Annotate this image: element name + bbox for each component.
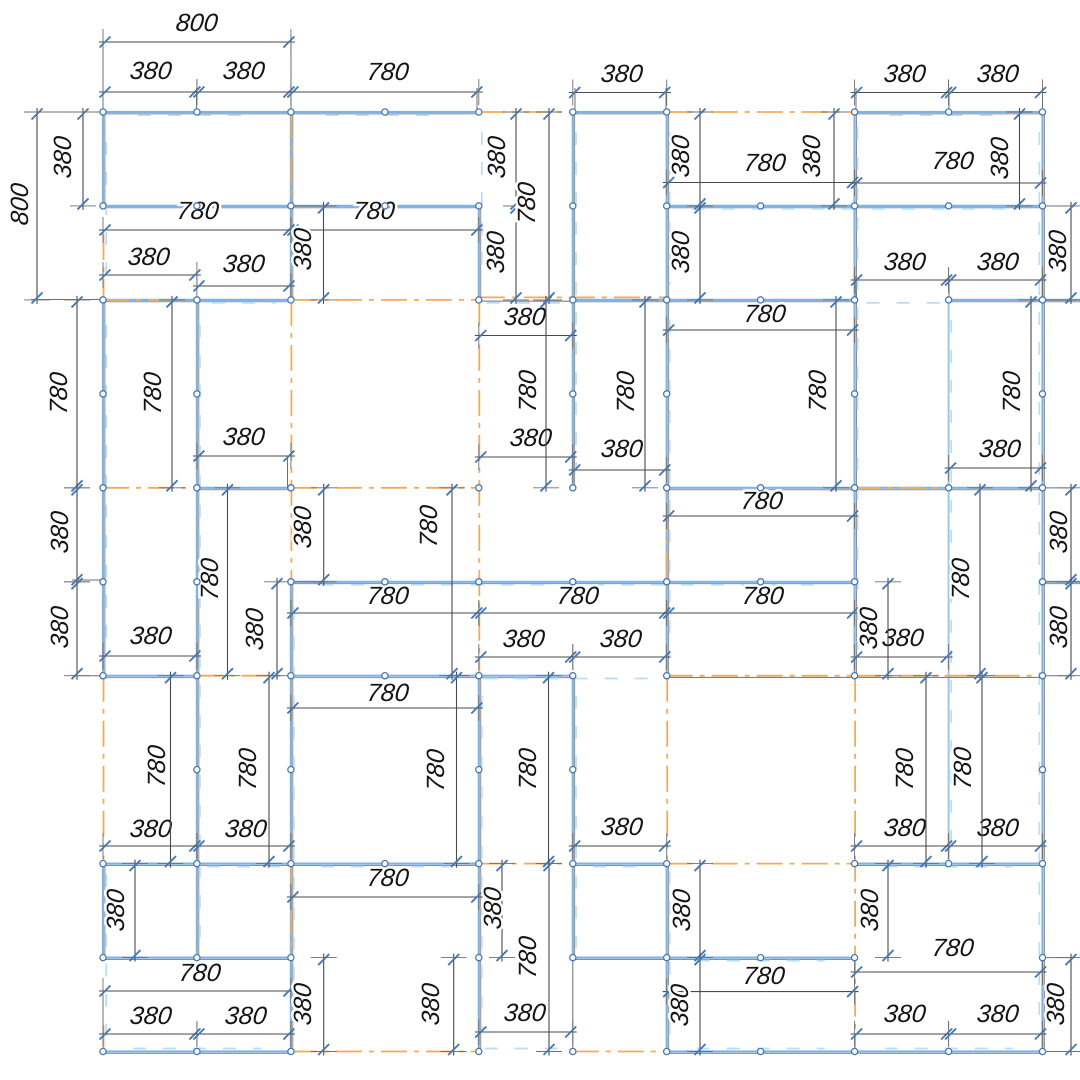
svg-text:380: 380: [666, 983, 694, 1028]
svg-text:380: 380: [289, 982, 317, 1027]
svg-text:380: 380: [798, 134, 826, 179]
svg-text:780: 780: [742, 962, 787, 990]
svg-text:780: 780: [352, 197, 397, 225]
svg-text:780: 780: [143, 744, 171, 789]
svg-text:380: 380: [127, 243, 172, 271]
svg-text:380: 380: [417, 982, 445, 1027]
svg-text:780: 780: [178, 959, 223, 987]
svg-text:380: 380: [978, 435, 1023, 463]
svg-text:780: 780: [415, 504, 443, 549]
svg-text:780: 780: [514, 935, 542, 980]
svg-text:380: 380: [1044, 229, 1072, 274]
svg-text:380: 380: [668, 888, 696, 933]
svg-text:380: 380: [856, 888, 884, 933]
svg-text:380: 380: [102, 888, 130, 933]
svg-text:800: 800: [175, 9, 220, 37]
svg-text:780: 780: [234, 747, 262, 792]
svg-text:380: 380: [129, 1002, 174, 1030]
svg-text:380: 380: [503, 999, 548, 1027]
svg-text:780: 780: [804, 369, 832, 414]
svg-text:780: 780: [366, 679, 411, 707]
svg-text:380: 380: [1045, 510, 1073, 555]
svg-text:380: 380: [129, 622, 174, 650]
svg-text:380: 380: [222, 57, 267, 85]
svg-text:380: 380: [986, 136, 1014, 181]
svg-text:780: 780: [513, 181, 541, 226]
svg-text:380: 380: [883, 60, 928, 88]
svg-text:780: 780: [741, 582, 786, 610]
svg-text:380: 380: [600, 60, 645, 88]
svg-text:380: 380: [667, 134, 695, 179]
svg-text:380: 380: [1045, 605, 1073, 650]
svg-text:380: 380: [883, 814, 928, 842]
svg-text:780: 780: [139, 371, 167, 416]
svg-text:780: 780: [891, 747, 919, 792]
svg-text:380: 380: [222, 423, 267, 451]
svg-text:380: 380: [289, 227, 317, 272]
svg-text:780: 780: [949, 746, 977, 791]
svg-text:380: 380: [479, 886, 507, 931]
svg-text:780: 780: [931, 934, 976, 962]
svg-text:380: 380: [224, 815, 269, 843]
svg-text:380: 380: [667, 230, 695, 275]
svg-text:380: 380: [129, 815, 174, 843]
svg-text:780: 780: [366, 58, 411, 86]
svg-text:780: 780: [931, 147, 976, 175]
svg-text:780: 780: [514, 369, 542, 414]
svg-text:380: 380: [883, 248, 928, 276]
svg-text:780: 780: [196, 557, 224, 602]
svg-text:780: 780: [556, 582, 601, 610]
svg-text:380: 380: [976, 60, 1021, 88]
svg-text:380: 380: [224, 1002, 269, 1030]
svg-text:380: 380: [855, 606, 883, 651]
svg-text:380: 380: [289, 505, 317, 550]
svg-text:380: 380: [129, 57, 174, 85]
svg-text:380: 380: [976, 1000, 1021, 1028]
svg-text:380: 380: [46, 605, 74, 650]
svg-text:780: 780: [45, 371, 73, 416]
svg-text:380: 380: [241, 607, 269, 652]
svg-text:380: 380: [881, 624, 926, 652]
svg-text:780: 780: [514, 747, 542, 792]
svg-text:380: 380: [600, 813, 645, 841]
svg-text:380: 380: [502, 625, 547, 653]
svg-text:380: 380: [600, 435, 645, 463]
svg-text:380: 380: [222, 250, 267, 278]
svg-text:380: 380: [49, 135, 77, 180]
svg-text:780: 780: [743, 300, 788, 328]
svg-text:780: 780: [422, 748, 450, 793]
svg-text:380: 380: [46, 510, 74, 555]
svg-text:380: 380: [483, 135, 511, 180]
svg-text:780: 780: [947, 557, 975, 602]
svg-text:380: 380: [883, 1000, 928, 1028]
svg-text:380: 380: [1042, 982, 1070, 1027]
svg-text:780: 780: [366, 864, 411, 892]
svg-text:380: 380: [599, 625, 644, 653]
svg-text:800: 800: [6, 182, 34, 227]
svg-text:780: 780: [366, 582, 411, 610]
svg-text:780: 780: [743, 149, 788, 177]
svg-text:780: 780: [998, 370, 1026, 415]
svg-text:780: 780: [612, 370, 640, 415]
svg-text:380: 380: [976, 248, 1021, 276]
svg-text:380: 380: [482, 230, 510, 275]
svg-text:780: 780: [176, 197, 221, 225]
